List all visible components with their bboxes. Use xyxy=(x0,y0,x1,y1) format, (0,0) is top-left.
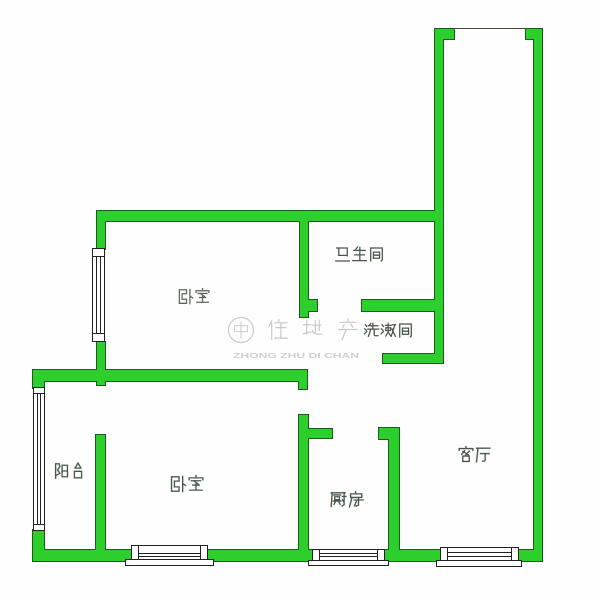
svg-text:ZHONG ZHU DI CHAN: ZHONG ZHU DI CHAN xyxy=(233,351,359,360)
